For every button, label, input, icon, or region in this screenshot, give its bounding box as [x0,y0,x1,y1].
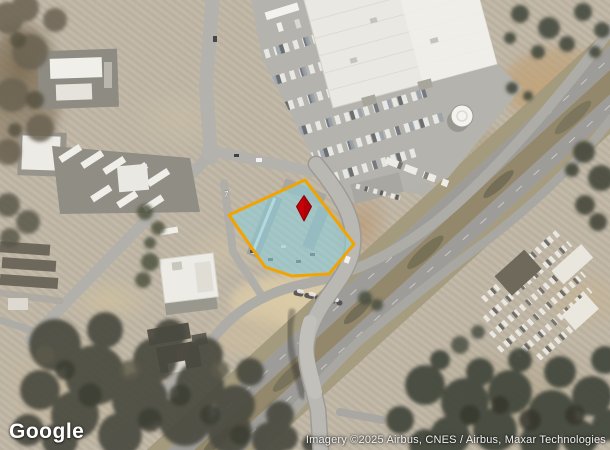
google-logo[interactable]: Google [9,420,84,444]
trailer-yard [52,144,200,236]
satellite-map-canvas[interactable]: 7 Google Imagery ©2025 Airbus, CNES / Ai… [0,0,610,450]
gas-station [37,49,119,110]
imagery-attribution: Imagery ©2025 Airbus, CNES / Airbus, Max… [306,434,606,446]
center-building [160,253,219,315]
parcel-label: 7 [224,190,229,199]
map-scene: 7 [0,0,610,450]
